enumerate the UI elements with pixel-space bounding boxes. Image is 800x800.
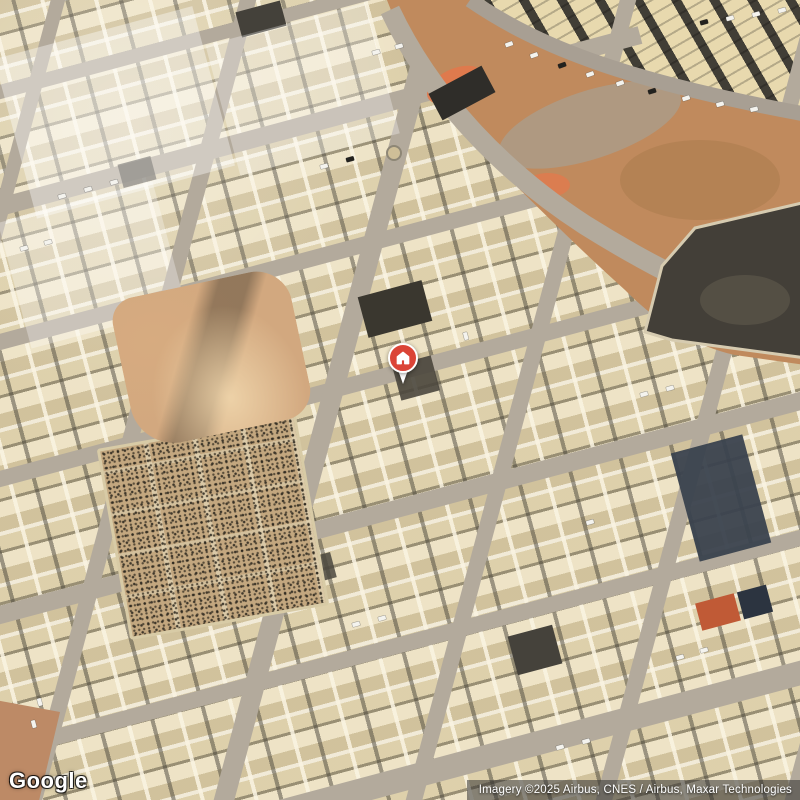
attribution-text: Imagery ©2025 Airbus, CNES / Airbus, Max…: [467, 780, 800, 800]
map-canvas[interactable]: Google Imagery ©2025 Airbus, CNES / Airb…: [0, 0, 800, 800]
google-logo[interactable]: Google: [9, 768, 88, 794]
pin-circle: [388, 343, 418, 373]
home-icon: [395, 350, 411, 366]
location-pin[interactable]: [388, 343, 418, 388]
cemetery-area: [97, 414, 330, 640]
satellite-blocks-texture: [0, 0, 800, 800]
